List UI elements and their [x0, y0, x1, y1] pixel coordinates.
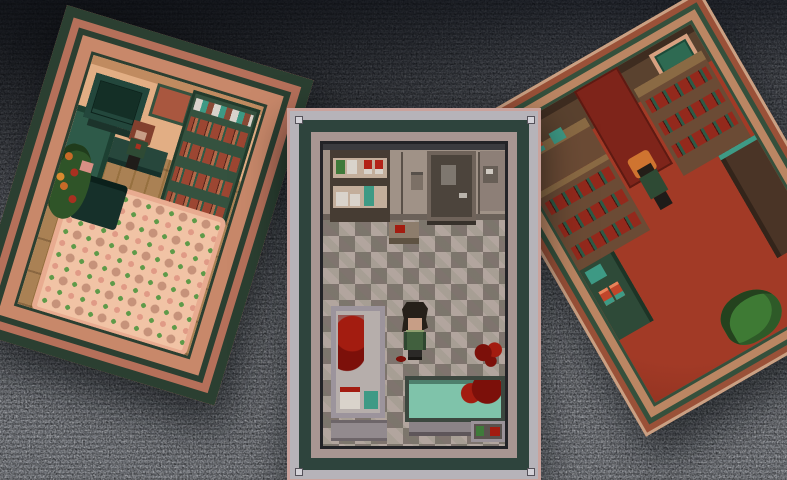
small-table: [389, 222, 419, 244]
supply-shelf: [330, 150, 390, 222]
tub-blood: [455, 380, 501, 404]
teal-bottle: [364, 186, 374, 206]
teal-stack: [585, 263, 608, 284]
bathroom-panel: [287, 108, 541, 480]
frame-bolt: [295, 468, 303, 476]
character-shoes: [408, 357, 422, 360]
living-room-interior: [18, 55, 264, 356]
green-box: [336, 160, 345, 174]
storage-cabinet: [331, 420, 387, 441]
white-box: [347, 160, 357, 174]
door-handle: [459, 193, 467, 198]
frame-bolt: [527, 468, 535, 476]
red-can: [375, 160, 383, 174]
game-viewport[interactable]: [0, 0, 787, 480]
door-window: [441, 165, 456, 185]
floor-blood-splatter: [468, 340, 505, 368]
character-protagonist[interactable]: [398, 302, 432, 360]
intercom-panel: [483, 166, 498, 183]
white-box: [336, 192, 348, 206]
red-item: [395, 225, 405, 233]
door[interactable]: [427, 151, 476, 221]
door-threshold: [427, 221, 476, 225]
character-face: [408, 318, 422, 330]
shower-stall: [331, 306, 385, 418]
frame-bolt: [527, 116, 535, 124]
bathroom-interior: [323, 144, 505, 446]
teal-bucket: [364, 391, 378, 409]
wall-fixture: [411, 172, 423, 190]
white-box: [350, 194, 360, 206]
bathtub: [405, 376, 505, 422]
corner-shelf: [471, 421, 505, 442]
white-bucket: [340, 387, 360, 409]
book-row: [171, 166, 233, 198]
blood-smear: [338, 315, 364, 377]
wall-divider: [401, 152, 403, 214]
character-pants: [408, 350, 422, 357]
character-legs: [125, 155, 140, 171]
frame-bolt: [295, 116, 303, 124]
teal-box: [549, 127, 567, 144]
red-can: [364, 160, 372, 174]
book-row: [179, 141, 241, 173]
character-jacket: [404, 332, 426, 350]
